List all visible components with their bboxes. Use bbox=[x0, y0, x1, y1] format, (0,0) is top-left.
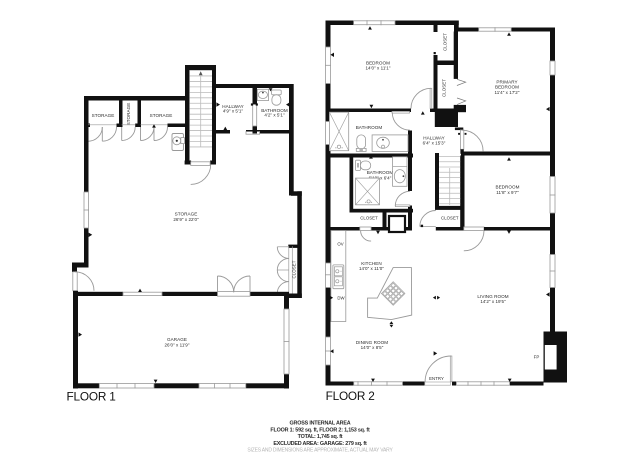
svg-text:14'0" x 11'1": 14'0" x 11'1" bbox=[366, 65, 391, 70]
svg-text:6'4" x 15'3": 6'4" x 15'3" bbox=[423, 140, 446, 145]
svg-text:CLOSET: CLOSET bbox=[360, 216, 378, 221]
svg-text:STORAGE: STORAGE bbox=[126, 103, 131, 126]
svg-text:FLOOR 1: 592 sq. ft, FLOOR 2:: FLOOR 1: 592 sq. ft, FLOOR 2: 1,153 sq. … bbox=[270, 428, 370, 434]
svg-text:TOTAL: 1,745 sq. ft: TOTAL: 1,745 sq. ft bbox=[298, 434, 343, 440]
svg-text:CLOSET: CLOSET bbox=[442, 33, 447, 51]
svg-text:BEDROOM: BEDROOM bbox=[495, 185, 519, 190]
svg-text:STORAGE: STORAGE bbox=[175, 212, 198, 217]
svg-text:FP: FP bbox=[534, 354, 540, 359]
svg-text:11'4" x 17'2": 11'4" x 17'2" bbox=[495, 90, 520, 95]
svg-text:SIZES AND DIMENSIONS ARE APPRO: SIZES AND DIMENSIONS ARE APPROXIMATE, AC… bbox=[247, 447, 393, 452]
svg-text:26'9" x 22'0": 26'9" x 22'0" bbox=[173, 217, 199, 222]
svg-text:EXCLUDED AREA: GARAGE: 279 sq.: EXCLUDED AREA: GARAGE: 279 sq. ft bbox=[273, 441, 367, 447]
svg-text:FLOOR 1: FLOOR 1 bbox=[67, 389, 116, 403]
svg-text:GARAGE: GARAGE bbox=[167, 337, 187, 342]
svg-text:CLOSET: CLOSET bbox=[442, 79, 447, 97]
svg-text:4'2" x 5'1": 4'2" x 5'1" bbox=[264, 113, 285, 118]
svg-text:STORAGE: STORAGE bbox=[92, 113, 115, 118]
svg-text:CLOSET: CLOSET bbox=[441, 216, 459, 221]
svg-text:26'0" x 11'9": 26'0" x 11'9" bbox=[165, 343, 190, 348]
svg-text:STORAGE: STORAGE bbox=[150, 113, 173, 118]
svg-text:14'0" x 8'5": 14'0" x 8'5" bbox=[361, 345, 384, 350]
svg-text:14'0" x 11'0": 14'0" x 11'0" bbox=[359, 266, 384, 271]
svg-text:ENTRY: ENTRY bbox=[429, 376, 444, 381]
svg-text:11'8" x 9'7": 11'8" x 9'7" bbox=[496, 190, 519, 195]
svg-text:BATHROOM: BATHROOM bbox=[356, 125, 383, 130]
svg-text:DW: DW bbox=[337, 296, 345, 301]
svg-text:FLOOR 2: FLOOR 2 bbox=[326, 389, 375, 403]
svg-text:OV: OV bbox=[337, 241, 343, 246]
svg-text:GROSS INTERNAL AREA: GROSS INTERNAL AREA bbox=[290, 420, 351, 426]
svg-text:14'2" x 19'5": 14'2" x 19'5" bbox=[480, 299, 506, 304]
svg-text:4'9" x 5'1": 4'9" x 5'1" bbox=[223, 108, 244, 113]
svg-text:BEDROOM: BEDROOM bbox=[495, 85, 519, 90]
svg-text:PRIMARY: PRIMARY bbox=[496, 79, 517, 84]
svg-text:BATHROOM: BATHROOM bbox=[367, 170, 394, 175]
